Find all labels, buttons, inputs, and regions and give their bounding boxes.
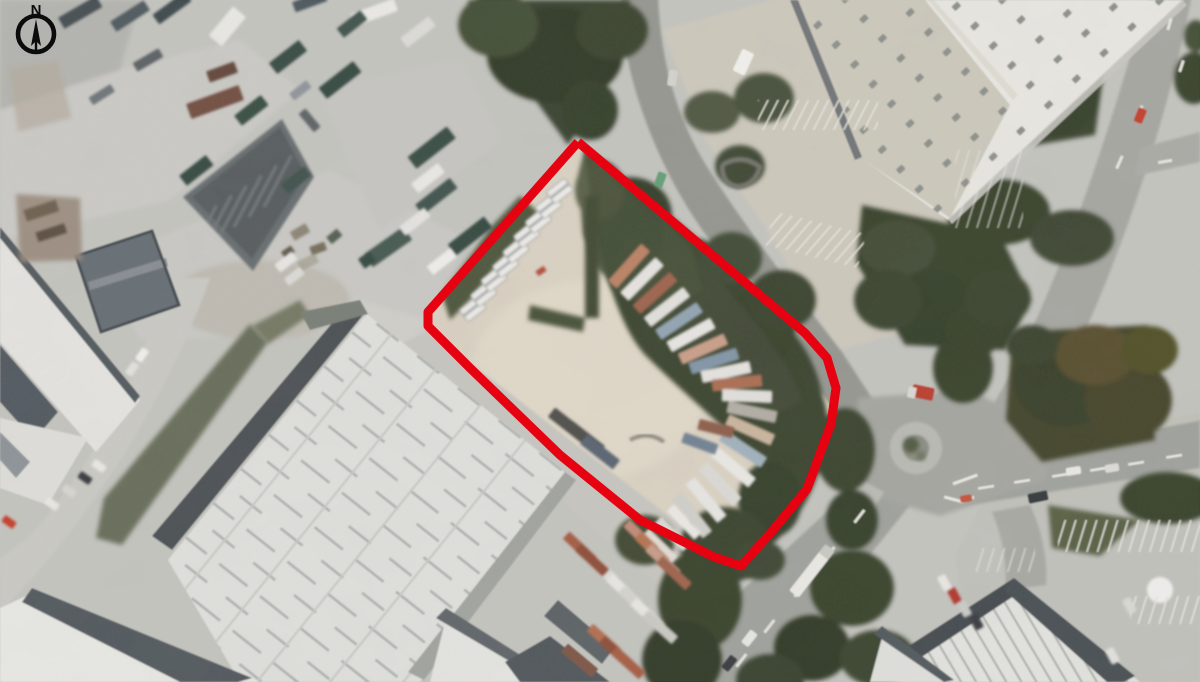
- svg-text:N: N: [31, 2, 42, 19]
